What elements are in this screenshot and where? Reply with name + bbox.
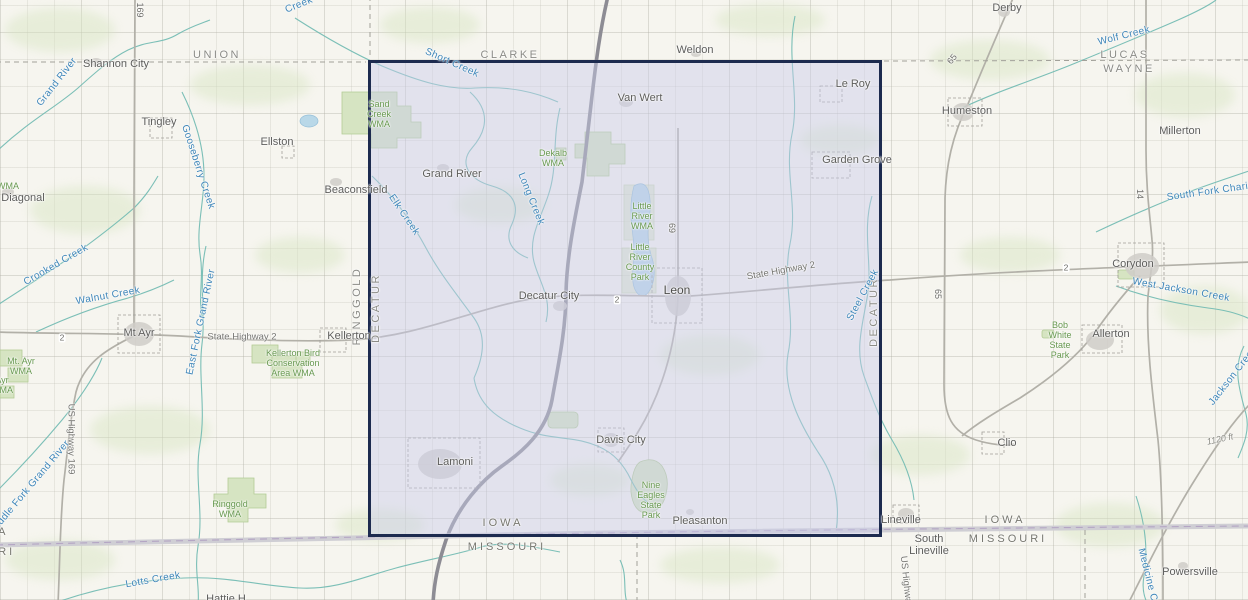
town-label-le-roy: Le Roy <box>836 78 871 90</box>
state-label-missouri-center: MISSOURI <box>468 541 546 553</box>
town-label-hattie-h: Hattie H <box>206 593 246 600</box>
park-label-little-river-wma: Little River WMA <box>626 201 658 231</box>
county-label-decatur-west: DECATUR <box>370 273 382 343</box>
town-label-humeston: Humeston <box>942 105 992 117</box>
town-label-ellston: Ellston <box>260 136 293 148</box>
park-label-kellerton-bird-conservation-area: Kellerton Bird Conservation Area WMA <box>259 348 327 378</box>
park-label-mt-ayr-wma: Mt. Ayr WMA <box>3 356 39 376</box>
town-label-pleasanton: Pleasanton <box>672 515 727 527</box>
county-label-clarke: CLARKE <box>480 49 539 61</box>
park-label-dekalb-wma: Dekalb WMA <box>533 148 573 168</box>
town-label-kellerton: Kellerton <box>327 330 370 342</box>
road-shield-2-leon: 2 <box>614 295 621 304</box>
town-label-leon: Leon <box>664 283 691 297</box>
park-label-ayr-wma-partial: Ayr WMA <box>0 375 15 395</box>
town-label-mt-ayr: Mt Ayr <box>124 327 155 339</box>
town-label-garden-grove: Garden Grove <box>822 154 892 166</box>
park-label-ringgold-wma: Ringgold WMA <box>208 499 252 519</box>
county-label-union: UNION <box>193 49 241 61</box>
road-label-65-south: 65 <box>933 289 943 299</box>
park-label-nine-eagles-state-park: Nine Eagles State Park <box>636 480 666 520</box>
town-label-clio: Clio <box>998 437 1017 449</box>
state-label-missouri-left-edge: MISSOURI <box>0 546 15 558</box>
state-label-iowa-center: IOWA <box>483 517 524 529</box>
road-label-state-highway-2-west: State Highway 2 <box>207 332 276 343</box>
town-label-diagonal: Diagonal <box>1 192 44 204</box>
county-label-wayne: WAYNE <box>1103 63 1155 75</box>
state-label-iowa-right: IOWA <box>985 514 1026 526</box>
park-label-wma-partial: WMA <box>0 181 23 191</box>
road-shield-2-west: 2 <box>59 333 66 342</box>
town-label-millerton: Millerton <box>1159 125 1201 137</box>
town-label-decatur-city: Decatur City <box>519 290 580 302</box>
road-label-14: 14 <box>1135 189 1145 199</box>
park-label-sand-creek-wma: Sand Creek WMA <box>361 99 397 129</box>
road-label-us-highway-169: US Highway 169 <box>66 404 77 475</box>
map-canvas[interactable]: UNION CLARKE LUCAS WAYNE RINGGOLD DECATU… <box>0 0 1248 600</box>
town-label-powersville: Powersville <box>1162 566 1218 578</box>
town-label-south-lineville: South Lineville <box>904 533 954 557</box>
town-label-davis-city: Davis City <box>596 434 646 446</box>
town-label-grand-river: Grand River <box>422 168 481 180</box>
town-label-weldon: Weldon <box>676 44 713 56</box>
town-label-allerton: Allerton <box>1092 328 1129 340</box>
state-label-missouri-right: MISSOURI <box>969 533 1047 545</box>
road-label-69: 69 <box>667 223 677 233</box>
town-label-beaconsfield: Beaconsfield <box>325 184 388 196</box>
town-label-tingley: Tingley <box>141 116 176 128</box>
town-label-lineville: Lineville <box>881 514 921 526</box>
road-shield-2-corydon: 2 <box>1063 263 1070 272</box>
park-label-little-river-county-park: Little River County Park <box>620 242 660 282</box>
road-label-169: 169 <box>135 2 145 17</box>
town-label-corydon: Corydon <box>1112 258 1154 270</box>
town-label-derby: Derby <box>992 2 1021 14</box>
park-label-bob-white-state-park: Bob White State Park <box>1046 320 1074 360</box>
town-label-lamoni: Lamoni <box>437 456 473 468</box>
town-label-van-wert: Van Wert <box>618 92 663 104</box>
town-label-shannon-city: Shannon City <box>83 58 149 70</box>
county-label-lucas: LUCAS <box>1100 49 1149 61</box>
